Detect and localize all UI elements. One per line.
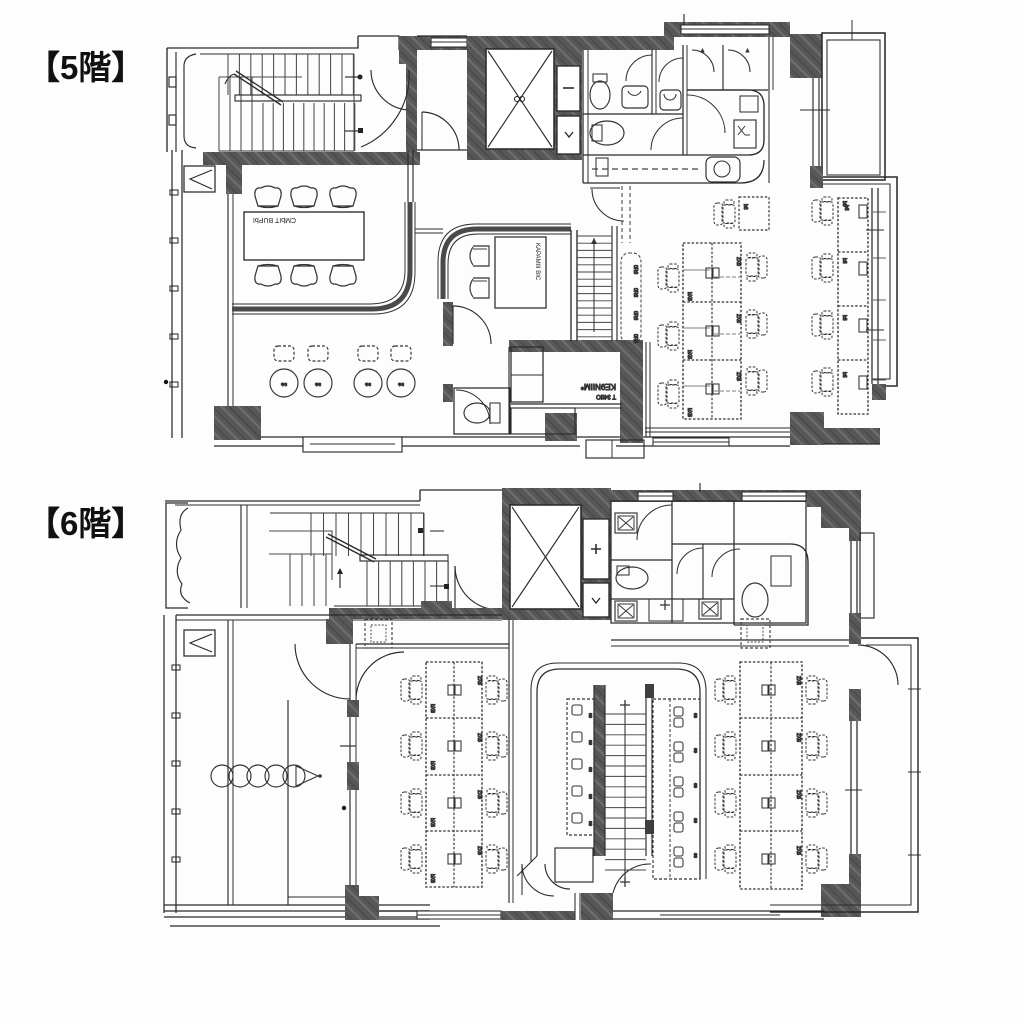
svg-text:bX6: bX6	[429, 704, 435, 713]
svg-text:69: 69	[588, 794, 593, 800]
svg-text:Ф6: Ф6	[315, 382, 321, 387]
svg-text:【6階】: 【6階】	[27, 505, 144, 542]
svg-text:KAPAMIII BIC: KAPAMIII BIC	[534, 243, 540, 281]
svg-text:2X6: 2X6	[795, 676, 801, 685]
svg-text:T 34tIO: T 34tIO	[596, 393, 616, 399]
svg-text:0R6: 0R6	[632, 311, 638, 320]
svg-text:2X6: 2X6	[735, 372, 741, 381]
svg-text:Ф6: Ф6	[365, 382, 371, 387]
svg-text:0R6: 0R6	[632, 265, 638, 274]
svg-text:69: 69	[588, 767, 593, 773]
svg-text:69: 69	[693, 713, 698, 719]
svg-text:▲: ▲	[745, 48, 750, 54]
svg-text:69: 69	[693, 748, 698, 754]
svg-text:0R6: 0R6	[632, 288, 638, 297]
svg-text:2X6: 2X6	[795, 790, 801, 799]
svg-text:b6: b6	[742, 204, 748, 210]
svg-text:bX6: bX6	[429, 874, 435, 883]
svg-text:2X6: 2X6	[476, 676, 482, 685]
svg-text:69: 69	[588, 713, 593, 719]
svg-text:2X6: 2X6	[795, 733, 801, 742]
svg-text:69: 69	[693, 783, 698, 789]
svg-text:CMbIT BUPbI: CMbIT BUPbI	[253, 216, 296, 223]
svg-text:b6: b6	[841, 258, 847, 264]
svg-text:0R6: 0R6	[632, 334, 638, 343]
svg-text:Ф6: Ф6	[398, 382, 404, 387]
svg-text:bX6: bX6	[429, 818, 435, 827]
svg-text:bX6: bX6	[686, 350, 692, 359]
svg-text:69: 69	[588, 821, 593, 827]
svg-text:b6: b6	[841, 372, 847, 378]
svg-text:2X6: 2X6	[476, 790, 482, 799]
svg-text:Ф6: Ф6	[281, 382, 287, 387]
svg-text:bX6: bX6	[686, 292, 692, 301]
svg-text:69: 69	[588, 740, 593, 746]
svg-text:KE9NIIM*: KE9NIIM*	[581, 382, 616, 391]
svg-text:2X6: 2X6	[735, 314, 741, 323]
svg-text:2X6: 2X6	[476, 846, 482, 855]
svg-text:b6: b6	[841, 315, 847, 321]
svg-text:bX6: bX6	[429, 761, 435, 770]
svg-text:【5階】: 【5階】	[27, 49, 144, 86]
svg-text:69: 69	[693, 818, 698, 824]
svg-text:2X6: 2X6	[476, 733, 482, 742]
svg-text:bX6: bX6	[686, 408, 692, 417]
svg-text:2X6: 2X6	[795, 846, 801, 855]
svg-text:69: 69	[693, 853, 698, 859]
svg-text:▲: ▲	[700, 48, 705, 54]
svg-text:b6: b6	[843, 205, 849, 211]
svg-text:2X6: 2X6	[735, 257, 741, 266]
